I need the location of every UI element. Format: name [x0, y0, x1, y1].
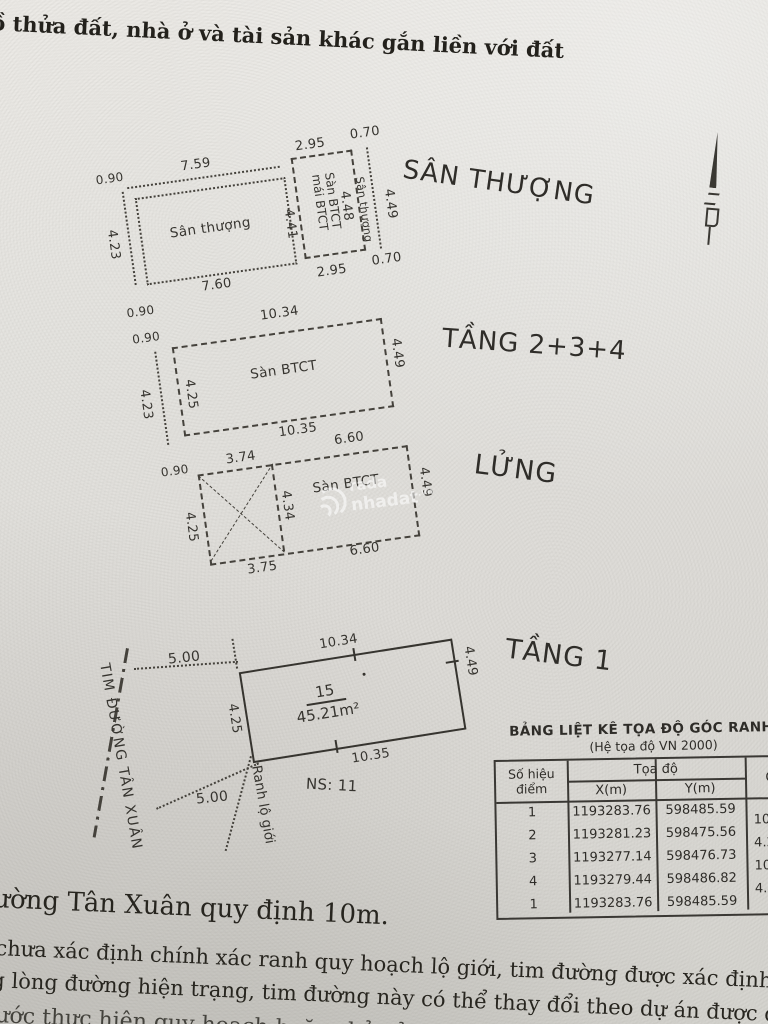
offset-top-dim: 0.90 — [95, 170, 125, 188]
north-flag — [705, 207, 720, 227]
bottom-box-dim: 2.95 — [316, 261, 348, 280]
left-outer-dim: 4.23 — [136, 389, 155, 421]
coord-x: 1193279.44 — [569, 868, 657, 893]
road-setback-dim-bottom: 5.00 — [195, 788, 229, 807]
floor-title-tang-1: TẦNG 1 — [504, 634, 615, 678]
table-subtitle: (Hệ tọa độ VN 2000) — [589, 737, 717, 754]
edge-length: 4.49 — [755, 881, 768, 897]
left-depth-dim: 4.25 — [225, 703, 245, 735]
note-road-width: ường Tân Xuân quy định 10m. — [0, 884, 390, 931]
left-depth-dim: 4.23 — [104, 229, 123, 261]
col-header-edge: C — [745, 757, 768, 798]
floor-title-lung: LỬNG — [472, 449, 558, 490]
bottom-width-dim: 7.60 — [201, 276, 233, 295]
offset-top-dim: 0.90 — [160, 462, 190, 480]
col-header-point: Số hiệu điểm — [496, 761, 568, 802]
top-left-dim: 3.74 — [225, 448, 257, 467]
coord-x: 1193283.76 — [569, 891, 657, 916]
bottom-left-dim: 3.75 — [246, 558, 278, 577]
radar-icon — [315, 489, 345, 519]
bottom-width-dim: 10.35 — [351, 746, 392, 767]
floor-title-san-thuong: SÂN THƯỢNG — [401, 155, 597, 212]
north-squiggle — [704, 193, 720, 206]
coordinate-table: BẢNG LIỆT KÊ TỌA ĐỘ GÓC RANH (Hệ tọa độ … — [493, 718, 768, 934]
table-grid: Số hiệu điểm Tọa độ X(m) Y(m) C 1 119328… — [494, 754, 768, 920]
bottom-right-dim: 6.60 — [349, 540, 381, 559]
point-id: 2 — [497, 824, 568, 848]
document-title: ồ thửa đất, nhà ở và tài sản khác gắn li… — [0, 10, 565, 63]
coord-y: 598485.59 — [655, 798, 745, 823]
right-depth-dim: 4.49 — [461, 645, 481, 677]
col-header-x: X(m) — [567, 779, 655, 801]
top-strip-dim: 0.70 — [349, 124, 381, 143]
coord-x: 1193281.23 — [568, 822, 656, 847]
corner-leader — [231, 639, 238, 669]
north-arrow-icon — [695, 131, 731, 251]
floor-title-tang-234: TẦNG 2+3+4 — [441, 324, 627, 367]
top-box-dim: 2.95 — [294, 135, 326, 154]
north-tail — [707, 227, 711, 245]
point-id: 1 — [496, 801, 567, 825]
col-header-y: Y(m) — [655, 778, 745, 800]
mid-depth-dim: 4.41 — [281, 208, 300, 240]
edge-length: 10.34 — [754, 812, 768, 828]
right-depth-dim: 4.49 — [381, 188, 400, 220]
top-right-dim: 6.60 — [333, 429, 365, 448]
offset-top-dim: 0.90 — [131, 329, 161, 347]
left-depth-dim: 4.25 — [182, 511, 201, 543]
top-width-dim: 10.34 — [259, 303, 299, 323]
coord-y: 598486.82 — [657, 867, 747, 892]
edge-length: 10.35 — [754, 858, 768, 874]
lot-boundary-left — [122, 192, 137, 285]
coord-y: 598475.56 — [656, 821, 746, 846]
top-width-dim: 7.59 — [180, 155, 212, 174]
coord-y: 598485.59 — [657, 890, 747, 915]
coord-y: 598476.73 — [656, 844, 746, 869]
table-title: BẢNG LIỆT KÊ TỌA ĐỘ GÓC RANH — [509, 719, 768, 740]
right-depth-dim: 4.49 — [388, 337, 407, 369]
bottom-strip-dim: 0.70 — [371, 250, 403, 269]
lot-boundary-left — [154, 352, 169, 445]
point-id: 1 — [498, 893, 569, 917]
coord-x: 1193283.76 — [567, 799, 655, 824]
coord-x: 1193277.14 — [568, 845, 656, 870]
point-id: 4 — [498, 870, 569, 894]
point-id: 3 — [497, 847, 568, 871]
north-needle — [709, 132, 721, 188]
ns-label: NS: 11 — [306, 775, 358, 796]
edge-length: 4.25 — [754, 835, 768, 851]
scanned-land-document: ồ thửa đất, nhà ở và tài sản khác gắn li… — [0, 0, 768, 1024]
